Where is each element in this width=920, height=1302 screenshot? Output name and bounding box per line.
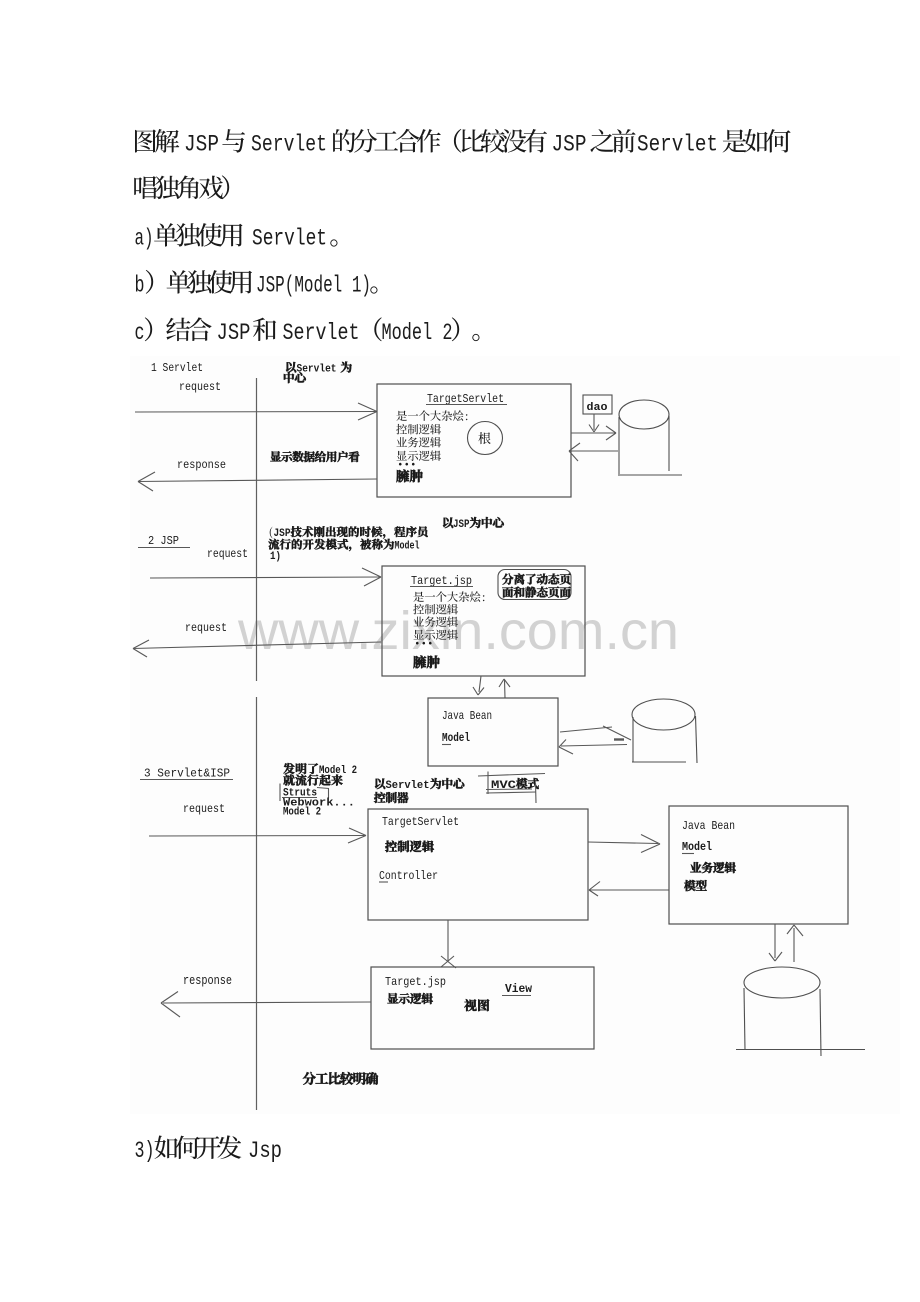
svg-text:dao: dao <box>587 402 608 414</box>
svg-text:MVC: MVC <box>491 780 516 792</box>
svg-text:Model: Model <box>682 841 712 854</box>
svg-text:request: request <box>183 803 225 816</box>
svg-text:Target.jsp: Target.jsp <box>385 976 446 989</box>
svg-text:JSP: JSP <box>217 320 251 346</box>
svg-text:Servlet: Servlet <box>637 132 718 158</box>
svg-text:Controller: Controller <box>379 870 438 883</box>
svg-text:Model 2: Model 2 <box>382 320 453 346</box>
svg-text:JSP: JSP <box>552 132 587 158</box>
svg-text:Java Bean: Java Bean <box>682 820 735 833</box>
svg-text:response: response <box>177 459 226 472</box>
svg-text:JSP: JSP <box>184 132 219 158</box>
svg-text:request: request <box>179 381 221 394</box>
svg-text:Model 2: Model 2 <box>283 807 321 819</box>
svg-text:Servlet: Servlet <box>283 320 360 346</box>
svg-text:response: response <box>183 974 232 988</box>
svg-text:Servlet: Servlet <box>297 364 337 376</box>
svg-text:Servlet: Servlet <box>251 132 327 158</box>
svg-text:Servlet: Servlet <box>386 780 430 792</box>
svg-text:JSP: JSP <box>274 528 291 540</box>
svg-text:JSP(Model 1): JSP(Model 1) <box>256 273 371 299</box>
svg-text:Java Bean: Java Bean <box>442 710 492 723</box>
svg-text:Model: Model <box>442 732 470 745</box>
svg-text:1 Servlet: 1 Servlet <box>151 362 203 375</box>
svg-text:Servlet: Servlet <box>252 226 327 252</box>
svg-text:b: b <box>135 273 145 299</box>
svg-text:request: request <box>185 622 227 635</box>
svg-text:Model: Model <box>395 541 420 553</box>
svg-text:View: View <box>505 983 532 996</box>
svg-text:JSP: JSP <box>453 519 470 531</box>
svg-text:Jsp: Jsp <box>248 1138 282 1164</box>
svg-text:a): a) <box>135 226 154 252</box>
svg-text:request: request <box>207 548 248 561</box>
svg-text:3 Servlet&ISP: 3 Servlet&ISP <box>144 767 230 781</box>
svg-text:c: c <box>135 320 145 346</box>
svg-text:www.zixin.com.cn: www.zixin.com.cn <box>237 601 679 661</box>
svg-text:TargetServlet: TargetServlet <box>382 816 459 829</box>
svg-text:1): 1) <box>270 551 281 563</box>
svg-text:2 JSP: 2 JSP <box>148 535 179 548</box>
svg-text:3): 3) <box>135 1138 155 1164</box>
